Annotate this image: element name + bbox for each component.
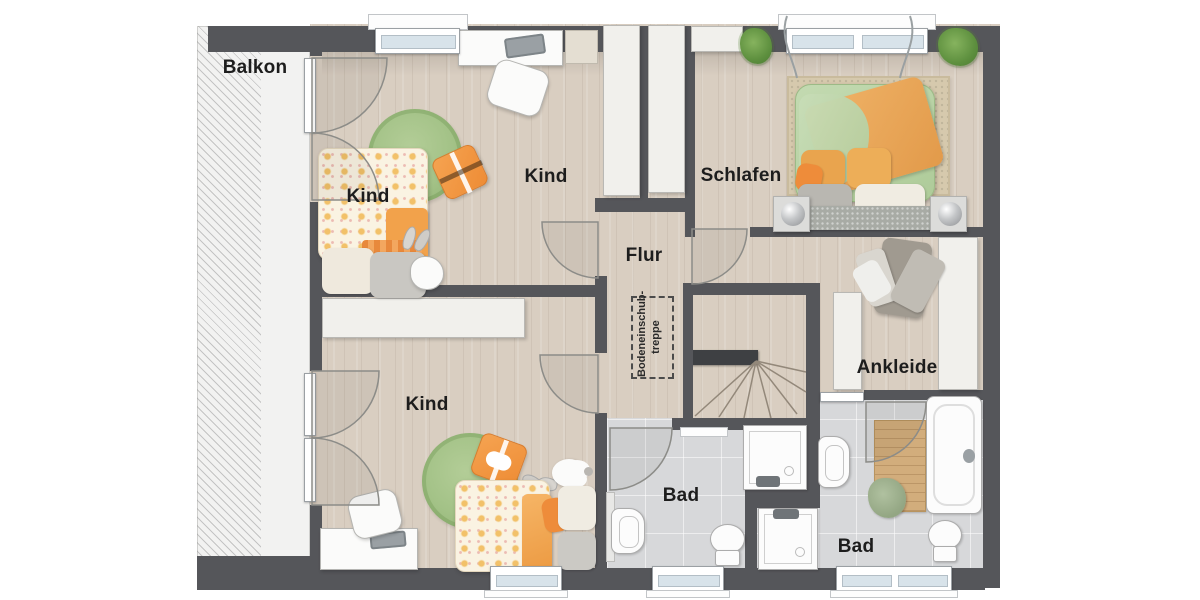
window [652,566,724,592]
window [490,566,562,592]
wall-stairwell-left [683,283,693,428]
room-label-ankleide: Ankleide [857,357,938,379]
balcony-door-leaf [304,58,316,133]
tub-faucet [963,449,975,463]
bed-schlafen [795,84,935,230]
wall-schlafen-left [685,26,695,237]
wall-kind-bottom-right-a [595,297,607,353]
towel-rail [680,427,728,437]
wall-left-upper [310,26,322,56]
wall-bottom-balcony [197,556,322,590]
lamp [938,202,962,226]
sink [818,436,850,488]
attic-stairs-label-line2: treppe [649,297,663,377]
wall-shower-separator-v [745,508,757,572]
balcony-hatch-shading [197,26,261,560]
clothes-pile [858,238,938,320]
shower-fitting [756,476,780,487]
wardrobe-kind-bottom [322,298,525,338]
wall-closet-divider [640,26,648,200]
room-label-balkon: Balkon [223,57,288,79]
room-label-kind-top-bed: Kind [346,186,389,208]
wall-right [983,26,1000,588]
lamp [781,202,805,226]
closet-kind-top [603,25,640,196]
window [836,566,952,592]
floor-plan: Bodeneinschub- treppe [0,0,1200,600]
shower [743,425,807,490]
room-label-bad-left: Bad [663,485,700,507]
sink [611,508,645,554]
room-label-kind-top: Kind [524,166,567,188]
window-ledge [646,590,730,598]
room-label-flur: Flur [626,245,663,267]
plant [938,28,978,66]
door-leaf-bathroom [820,392,864,402]
balcony-door-leaf [304,373,316,436]
towels [868,478,906,518]
bathtub [926,396,982,514]
attic-stairs-label-line1: Bodeneinschub- [635,297,649,377]
closet-schlafen-side [648,25,685,193]
room-label-bad-right: Bad [838,536,875,558]
window-ledge [484,590,568,598]
wall-closet-cap [595,198,695,212]
bed-kind-bottom [455,480,597,572]
shower [758,508,818,570]
nightstand [930,196,967,232]
staircase-edge [688,350,758,365]
room-label-bodeneinschubtreppe: Bodeneinschub- treppe [635,297,664,377]
wall-shower-separator-h [745,488,820,508]
slippers [404,226,430,252]
dresser [565,30,598,64]
side-table [410,256,444,290]
balcony-door-leaf [304,438,316,502]
closet-ankleide-right [938,237,978,390]
wall-stairwell-top [683,283,820,295]
shower-fitting [773,509,799,519]
toilet-tank [715,550,740,566]
room-label-kind-bottom: Kind [405,394,448,416]
room-label-schlafen: Schlafen [701,165,782,187]
window [375,28,460,54]
window-ledge [830,590,958,598]
nightstand [773,196,810,232]
toilet-tank [933,546,957,562]
window [786,28,928,54]
plant [740,28,772,64]
cupboard-schlafen [691,26,743,52]
